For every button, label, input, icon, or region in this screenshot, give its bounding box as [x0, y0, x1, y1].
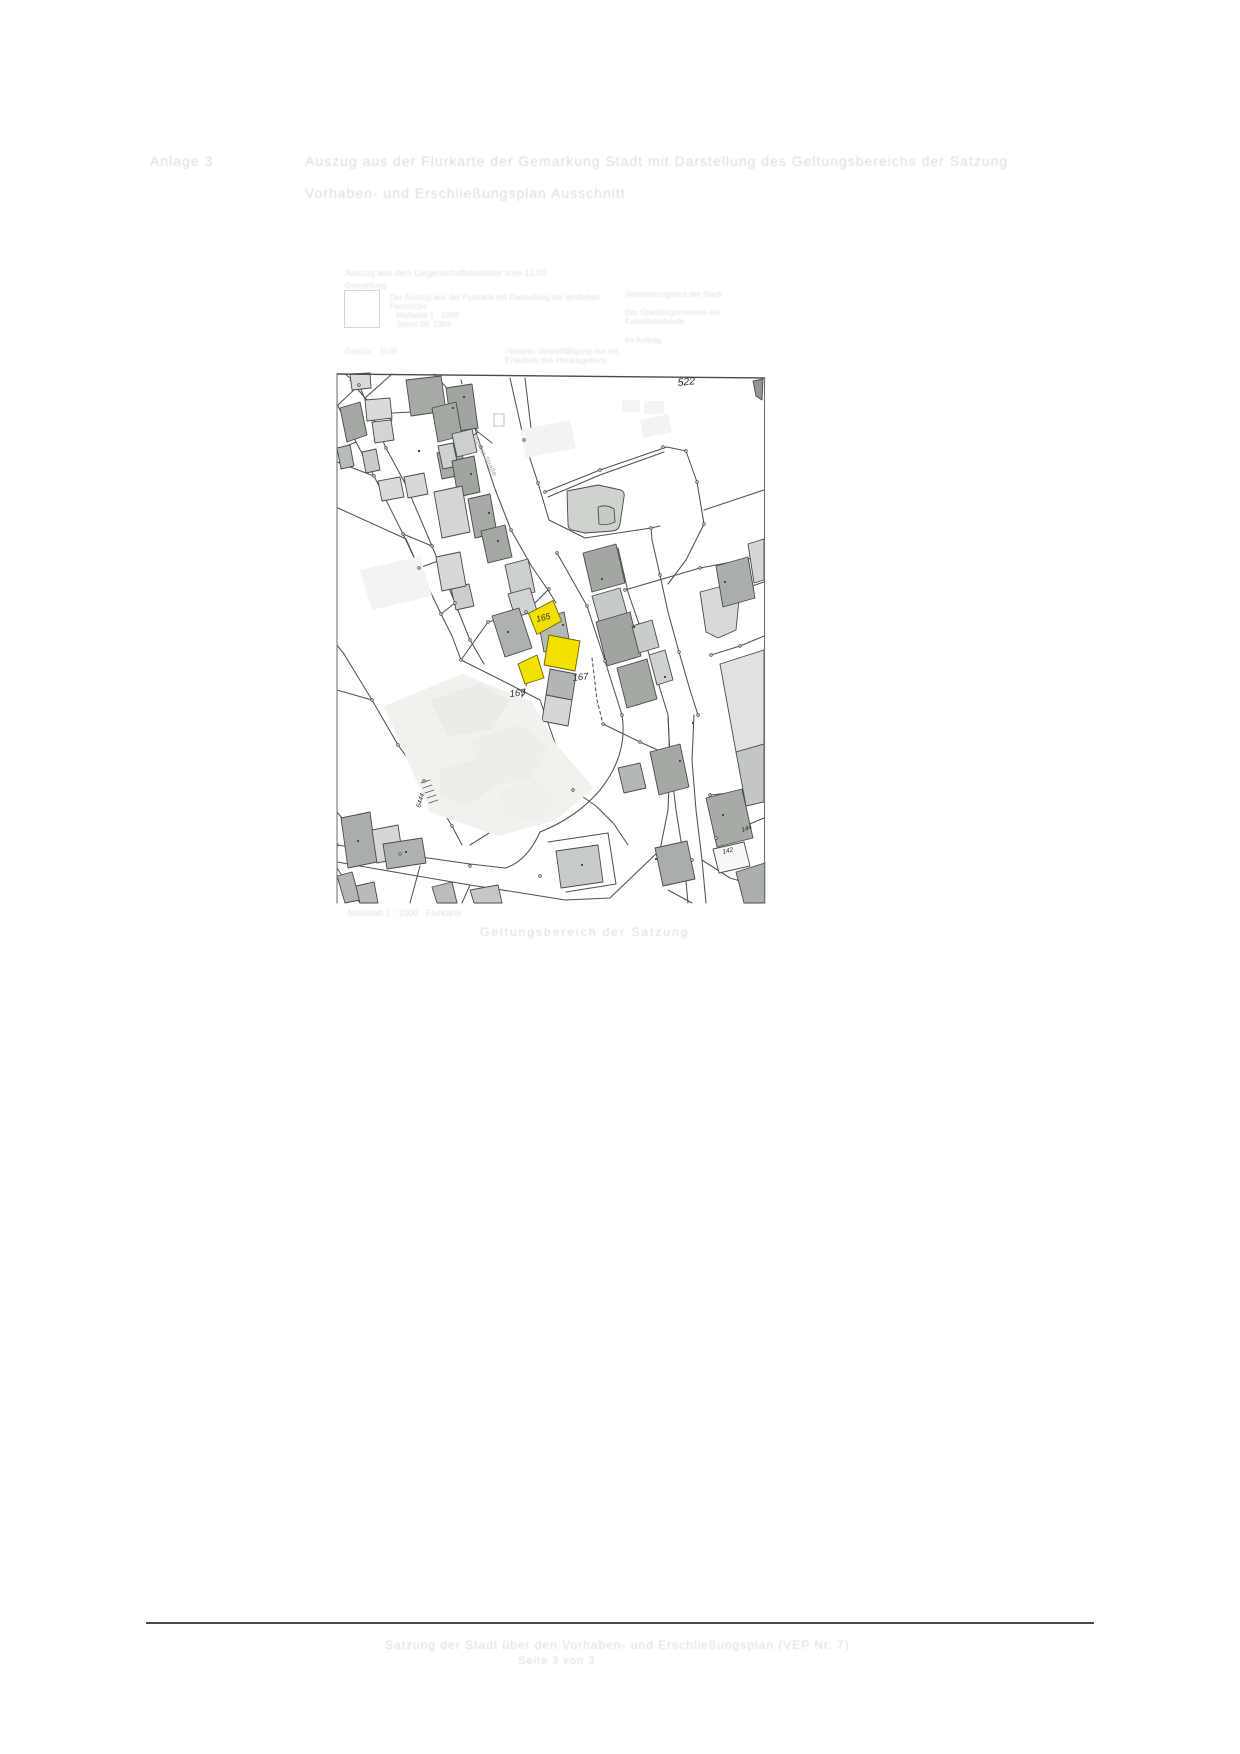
svg-text:522: 522: [677, 375, 696, 389]
svg-text:6444: 6444: [415, 792, 426, 808]
svg-text:169: 169: [509, 687, 527, 700]
svg-text:167: 167: [572, 671, 590, 684]
